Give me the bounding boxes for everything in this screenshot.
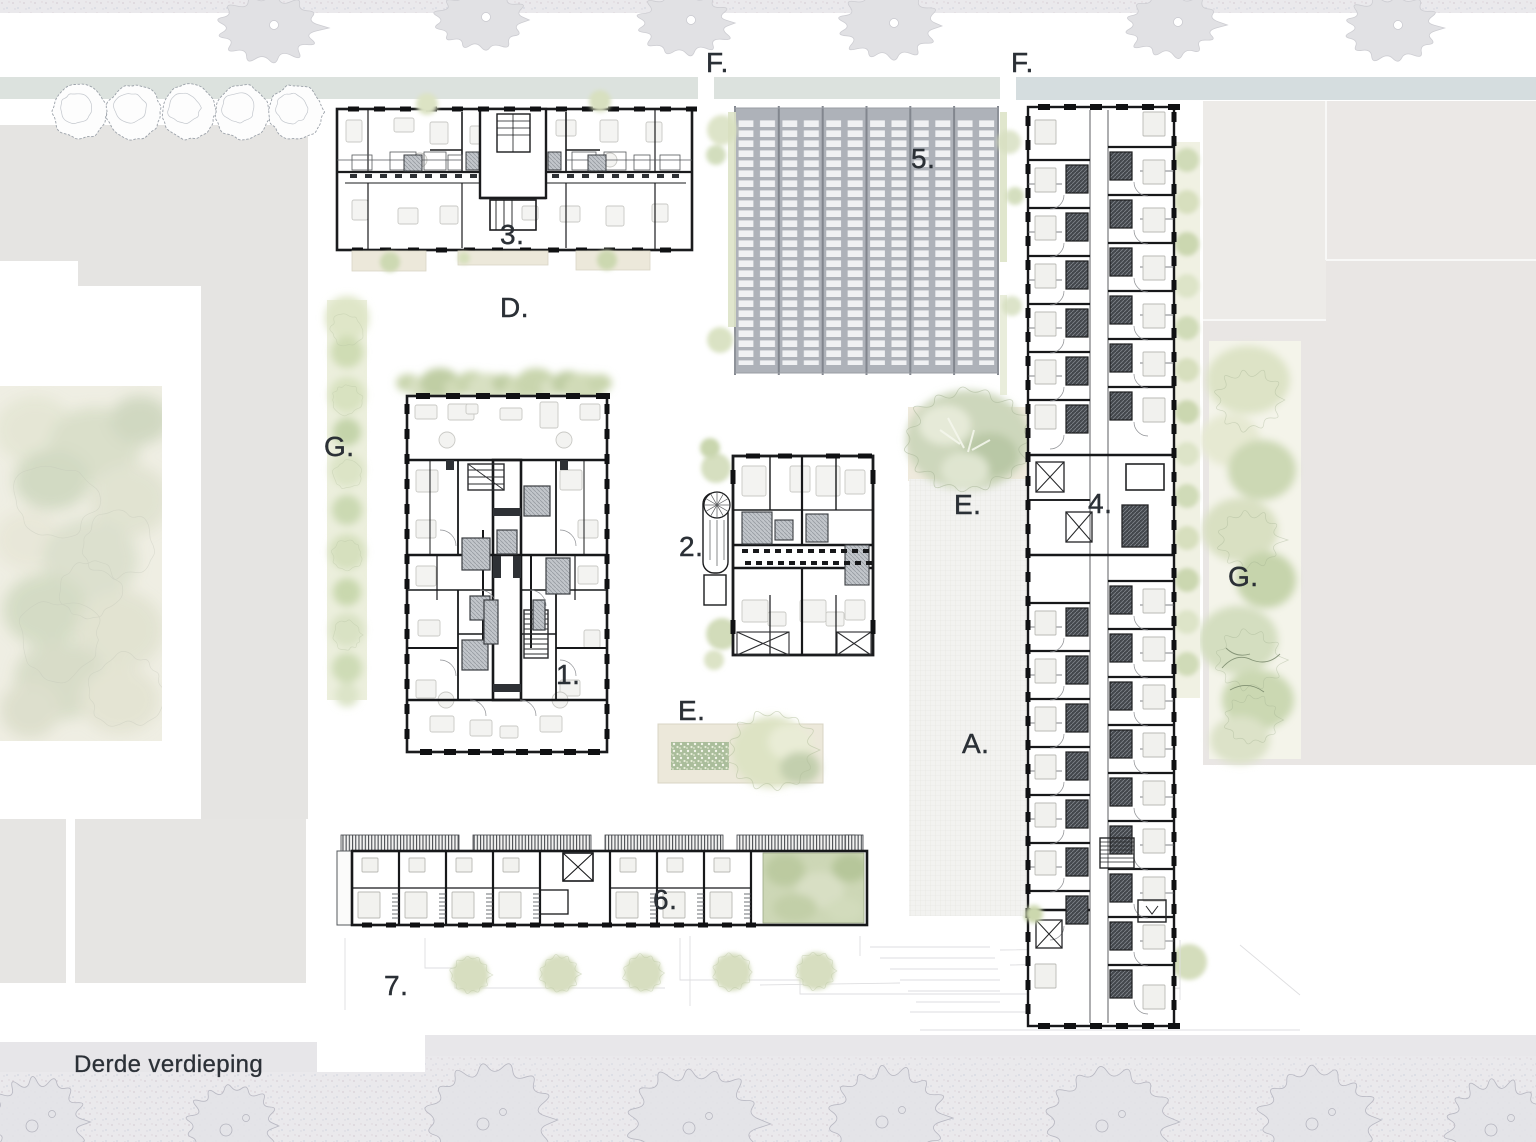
svg-text:E.: E. xyxy=(954,489,981,520)
svg-text:A.: A. xyxy=(962,728,989,759)
svg-text:4.: 4. xyxy=(1088,488,1112,519)
svg-text:G.: G. xyxy=(1228,561,1259,592)
svg-text:6.: 6. xyxy=(653,884,677,915)
svg-text:F.: F. xyxy=(706,47,729,78)
svg-text:3.: 3. xyxy=(500,219,524,250)
svg-text:Derde verdieping: Derde verdieping xyxy=(74,1051,263,1078)
svg-text:E.: E. xyxy=(678,695,705,726)
svg-text:F.: F. xyxy=(1011,47,1034,78)
svg-text:2.: 2. xyxy=(679,531,703,562)
svg-text:7.: 7. xyxy=(384,970,408,1001)
svg-text:1.: 1. xyxy=(556,659,580,690)
svg-text:G.: G. xyxy=(324,431,355,462)
svg-text:5.: 5. xyxy=(911,143,935,174)
svg-text:D.: D. xyxy=(500,292,529,323)
